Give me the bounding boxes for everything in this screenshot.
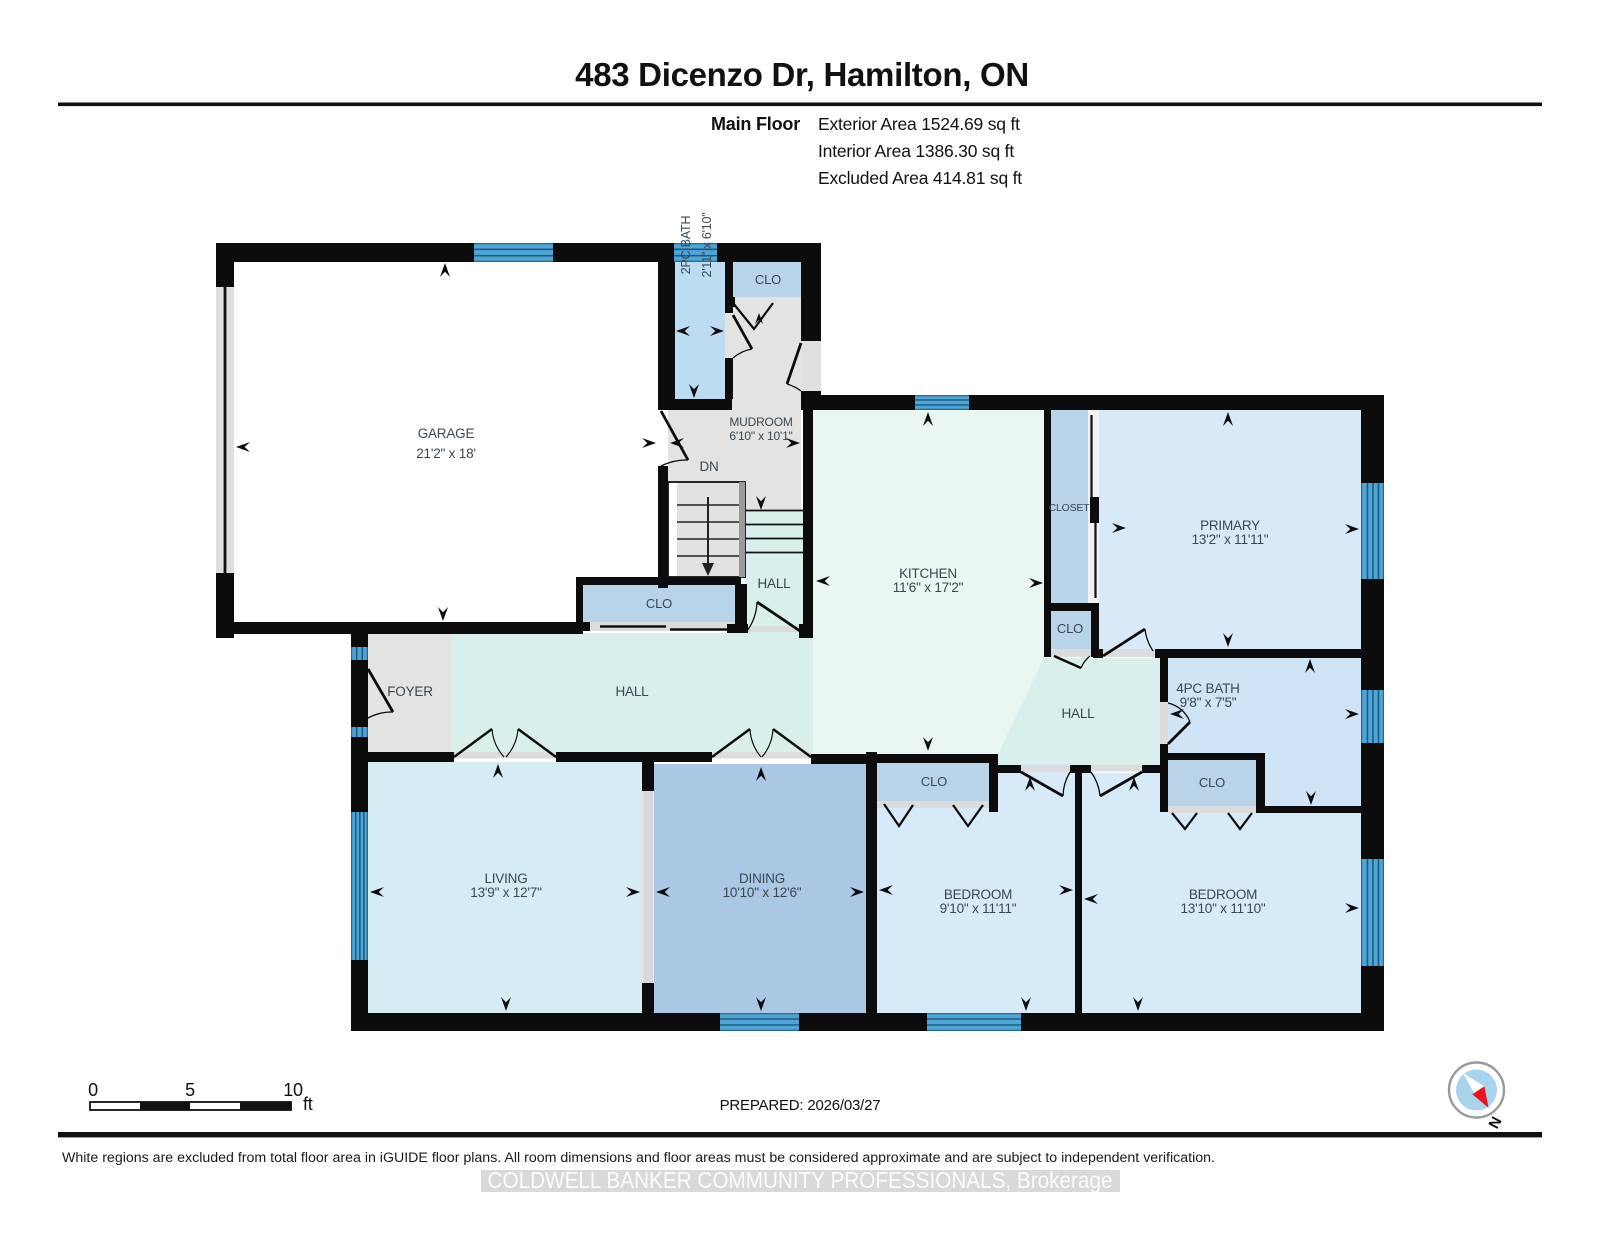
svg-text:GARAGE: GARAGE	[418, 426, 475, 441]
svg-text:9'10" x 11'11": 9'10" x 11'11"	[940, 901, 1017, 916]
svg-text:MUDROOM: MUDROOM	[729, 415, 792, 429]
svg-text:21'2" x 18': 21'2" x 18'	[416, 446, 476, 461]
svg-text:5: 5	[185, 1080, 195, 1100]
svg-text:CLO: CLO	[1057, 621, 1083, 636]
svg-text:6'10" x 10'1": 6'10" x 10'1"	[729, 429, 792, 443]
svg-text:CLOSET: CLOSET	[1049, 502, 1091, 514]
svg-text:9'8" x 7'5": 9'8" x 7'5"	[1180, 695, 1237, 710]
svg-text:KITCHEN: KITCHEN	[899, 566, 957, 581]
svg-text:COLDWELL BANKER COMMUNITY PROF: COLDWELL BANKER COMMUNITY PROFESSIONALS,…	[488, 1167, 1113, 1193]
svg-text:13'10" x 11'10": 13'10" x 11'10"	[1180, 901, 1265, 916]
svg-text:CLO: CLO	[646, 596, 672, 611]
svg-text:2PC BATH: 2PC BATH	[679, 216, 693, 275]
svg-text:Excluded Area 414.81 sq ft: Excluded Area 414.81 sq ft	[818, 168, 1022, 188]
svg-text:4PC BATH: 4PC BATH	[1176, 681, 1239, 696]
svg-text:2'11" x 6'10": 2'11" x 6'10"	[700, 212, 714, 277]
svg-text:Exterior Area 1524.69 sq ft: Exterior Area 1524.69 sq ft	[818, 114, 1020, 134]
svg-text:0: 0	[88, 1080, 98, 1100]
svg-text:PRIMARY: PRIMARY	[1200, 518, 1260, 533]
svg-text:DINING: DINING	[739, 871, 785, 886]
svg-text:CLO: CLO	[755, 272, 781, 287]
svg-text:BEDROOM: BEDROOM	[944, 887, 1012, 902]
svg-text:10'10" x 12'6": 10'10" x 12'6"	[723, 885, 802, 900]
svg-text:CLO: CLO	[921, 774, 947, 789]
svg-text:ft: ft	[303, 1094, 313, 1114]
svg-text:13'2" x 11'11": 13'2" x 11'11"	[1192, 532, 1269, 547]
svg-text:10: 10	[283, 1080, 303, 1100]
svg-text:13'9" x 12'7": 13'9" x 12'7"	[470, 885, 542, 900]
svg-text:White regions are excluded fro: White regions are excluded from total fl…	[62, 1150, 1215, 1166]
svg-text:CLO: CLO	[1199, 775, 1225, 790]
svg-text:HALL: HALL	[1062, 706, 1096, 721]
svg-text:483 Dicenzo Dr, Hamilton, ON: 483 Dicenzo Dr, Hamilton, ON	[575, 56, 1029, 93]
svg-text:DN: DN	[699, 459, 718, 474]
svg-text:Interior Area 1386.30 sq ft: Interior Area 1386.30 sq ft	[818, 141, 1014, 161]
svg-text:11'6" x 17'2": 11'6" x 17'2"	[893, 580, 964, 595]
svg-text:PREPARED: 2026/03/27: PREPARED: 2026/03/27	[720, 1097, 881, 1114]
svg-text:BEDROOM: BEDROOM	[1189, 887, 1257, 902]
svg-text:FOYER: FOYER	[387, 684, 433, 699]
svg-text:HALL: HALL	[758, 576, 792, 591]
svg-text:HALL: HALL	[616, 684, 650, 699]
svg-text:LIVING: LIVING	[484, 871, 527, 886]
svg-text:Main Floor: Main Floor	[711, 114, 800, 134]
